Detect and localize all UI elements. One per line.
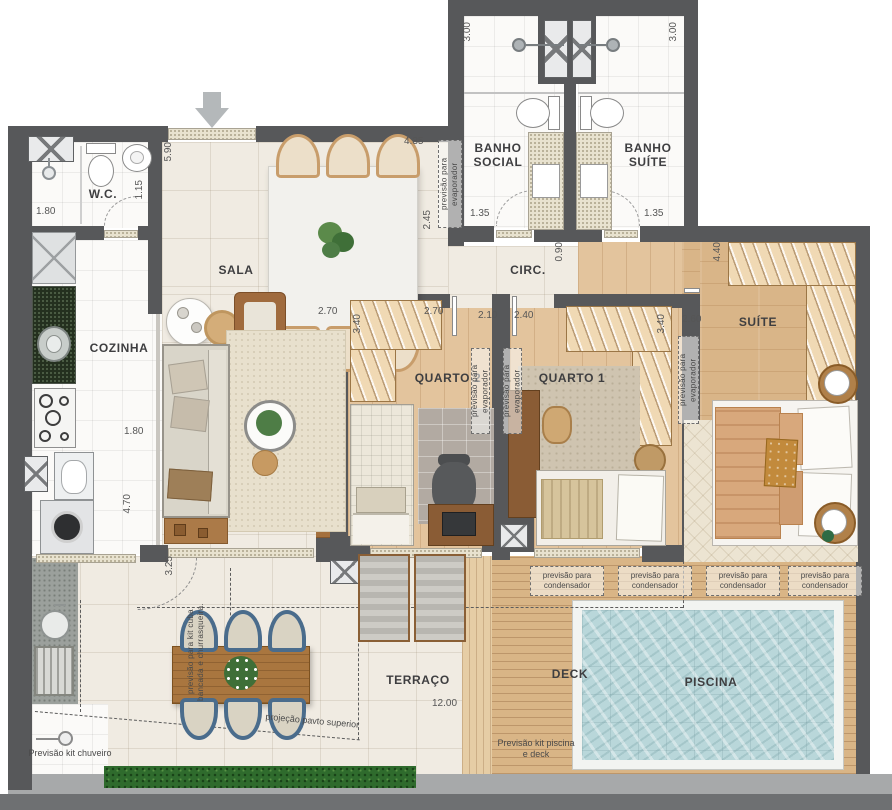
dim-suite-w: 2.60 [682,314,701,325]
shower-pipe-social [526,44,564,46]
wc-toilet-tank [86,143,116,154]
boundary-band-dark [0,794,892,810]
shower-kit-pipe-icon [36,738,60,740]
sun-lounger-1 [358,554,410,642]
sofa-end-table-candle-2 [198,528,208,538]
vanity-sink-social [532,164,560,198]
bed-suite-pillow-white-1 [797,406,852,471]
door-leaf-quarto2 [452,296,457,336]
wall-under-banho-c [640,226,700,242]
dim-wc-width: 1.80 [36,206,55,217]
entry-threshold [168,128,256,140]
floor-suite-hall [682,242,700,294]
closet-quarto2-side [350,349,396,402]
room-label-cozinha: COZINHA [84,342,154,356]
lamp-icon-1 [824,370,850,396]
annotation-condensador-4: previsão para condensador [788,566,862,596]
floor-plan: W.C. COZINHA SALA CIRC. BANHO SOCIAL BAN… [0,0,892,810]
wc-shower-partition [80,146,82,224]
dim-circ: 0.90 [554,242,565,261]
dim-quarto1-w: 2.40 [514,310,533,321]
annotation-kit-cuba: previsão para kit cuba bancada e churras… [186,596,220,708]
wc-shower-pipe [48,158,50,168]
desk-chair-quarto1 [542,406,572,444]
wall-banho-top [448,0,698,16]
sala-terrace-sill [168,548,314,558]
annotation-evaporador-suite: previsão para evaporador [678,336,699,424]
projection-line-v2 [80,600,81,712]
stove-burner-2 [59,396,69,406]
shaft-box-wc [28,136,74,162]
annotation-condensador-3: previsão para condensador [706,566,780,596]
dim-quarto2-a: 2.70 [318,306,337,317]
service-sink [40,610,70,640]
dim-banho-social-h: 3.00 [462,22,473,41]
room-label-sala: SALA [206,264,266,278]
bed-suite-pillow-accent [764,438,798,488]
sun-lounger-2 [414,554,466,642]
annotation-evaporador-sala: previsão para evaporador [438,140,462,228]
stove-burner-5 [60,432,69,441]
dim-banho-suite-h: 3.00 [668,22,679,41]
round-tray-table [252,450,278,476]
annotation-condensador-2: previsão para condensador [618,566,692,596]
annotation-kit-piscina: Previsão kit piscina e deck [494,738,578,761]
sofa-end-table-candle-1 [174,524,186,536]
deck-edge-strip [462,556,492,774]
nightstand-plant-icon [822,530,834,542]
wc-shower-head-icon [42,166,56,180]
bed-quarto2 [350,404,414,546]
banho-social-door-sill [496,230,532,238]
coffee-table-plant [256,410,282,436]
room-label-deck: DECK [540,668,600,682]
side-table-cup-1 [177,307,189,319]
toilet-bowl-suite [590,98,624,128]
annotation-kit-chuveiro: Previsão kit chuveiro [26,748,114,759]
annotation-condensador-1: previsão para condensador [530,566,604,596]
wc-sink-basin [130,151,144,164]
kitchen-sink-basin [46,335,62,353]
dim-sala-width: 4.35 [404,136,423,147]
wc-toilet-bowl [88,155,114,187]
entry-arrow-icon [195,108,229,128]
side-table-cup-2 [191,322,202,333]
bed-quarto1-blanket [541,479,603,539]
laptop-icon [442,512,476,536]
barbecue-grill [34,646,74,696]
stove-burner-1 [39,394,53,408]
quarto1-deck-sill [534,548,640,558]
shower-head-suite-icon [606,38,620,52]
wall-banho-right [684,16,698,226]
dim-quarto2-w: 2.10 [478,310,497,321]
room-label-banho-suite: BANHO SUÍTE [616,142,680,170]
annotation-evaporador-quarto1: previsão para evaporador [503,348,522,434]
dining-plant-leaf-3 [322,242,340,258]
washing-machine-door [51,511,83,543]
service-sink-faucet [54,604,66,606]
shower-kit-head-icon [58,731,73,746]
shower-glass-suite [578,92,684,94]
dim-banho-suite-w: 1.35 [644,208,663,219]
room-label-terraco: TERRAÇO [376,674,460,688]
banho-suite-door-sill [604,230,638,238]
shaft-box-banho-2 [572,20,592,78]
dim-sala-right: 2.45 [422,210,433,229]
shower-glass-social [464,92,564,94]
wall-wc-bottom-b [138,226,162,240]
annotation-evaporador-quarto2: previsão para evaporador [471,348,490,434]
dim-suite-closet: 4.40 [712,242,723,261]
wall-right-outer [856,226,870,774]
dim-quarto1-closet: 3.40 [656,314,667,333]
shaft-box-deck [500,524,528,548]
bed-quarto1-pillow [616,474,664,542]
closet-suite-top [728,242,856,286]
door-leaf-suite [684,288,700,293]
toilet-bowl-social [516,98,550,128]
dim-cozinha-w: 1.80 [124,426,143,437]
shaft-box-banho-1 [544,20,568,78]
shower-pipe-suite [576,44,606,46]
stove-burner-4 [39,430,51,442]
bed-quarto2-pillow [356,487,406,513]
wc-door-sill [104,230,138,238]
stove-burner-3 [45,410,61,426]
cozinha-terrace-sill [36,554,136,563]
sofa [162,344,230,518]
wall-banho-center [564,84,576,226]
bed-quarto2-blanket [353,513,409,544]
dim-terraco-w: 12.00 [432,698,457,709]
wall-under-banho-a [448,226,494,242]
sofa-pillow-1 [168,360,208,395]
dim-terraco-h: 3.25 [164,556,175,575]
sofa-pillow-2 [170,396,210,432]
wall-cozinha-divider [148,240,162,314]
dim-quarto2-b: 2.70 [424,306,443,317]
shaft-box-cozinha [24,456,48,492]
wall-suite-top [700,226,870,242]
room-label-circ: CIRC. [498,264,558,278]
fridge-space [32,232,76,284]
dim-wc-depth: 1.15 [134,180,145,199]
laundry-tank-basin [61,460,87,494]
dim-sala-height: 5.90 [163,142,174,161]
room-label-suite: SUÍTE [726,316,790,330]
grass-strip [104,766,416,788]
room-label-piscina: PISCINA [666,676,756,690]
outdoor-table-flowers [224,656,258,690]
vanity-sink-suite [580,164,608,198]
room-label-quarto1: QUARTO 1 [532,372,612,386]
entry-arrow-stem [203,92,221,108]
cozinha-sala-line [156,314,160,548]
dim-quarto2-closet: 3.40 [352,314,363,333]
dim-cozinha-h: 4.70 [122,494,133,513]
room-label-banho-social: BANHO SOCIAL [466,142,530,170]
shower-head-social-icon [512,38,526,52]
room-label-wc: W.C. [78,188,128,202]
dim-banho-social-w: 1.35 [470,208,489,219]
shaft-box-terrace [330,560,360,584]
sofa-throw [167,469,213,502]
bed-quarto1 [536,470,666,546]
